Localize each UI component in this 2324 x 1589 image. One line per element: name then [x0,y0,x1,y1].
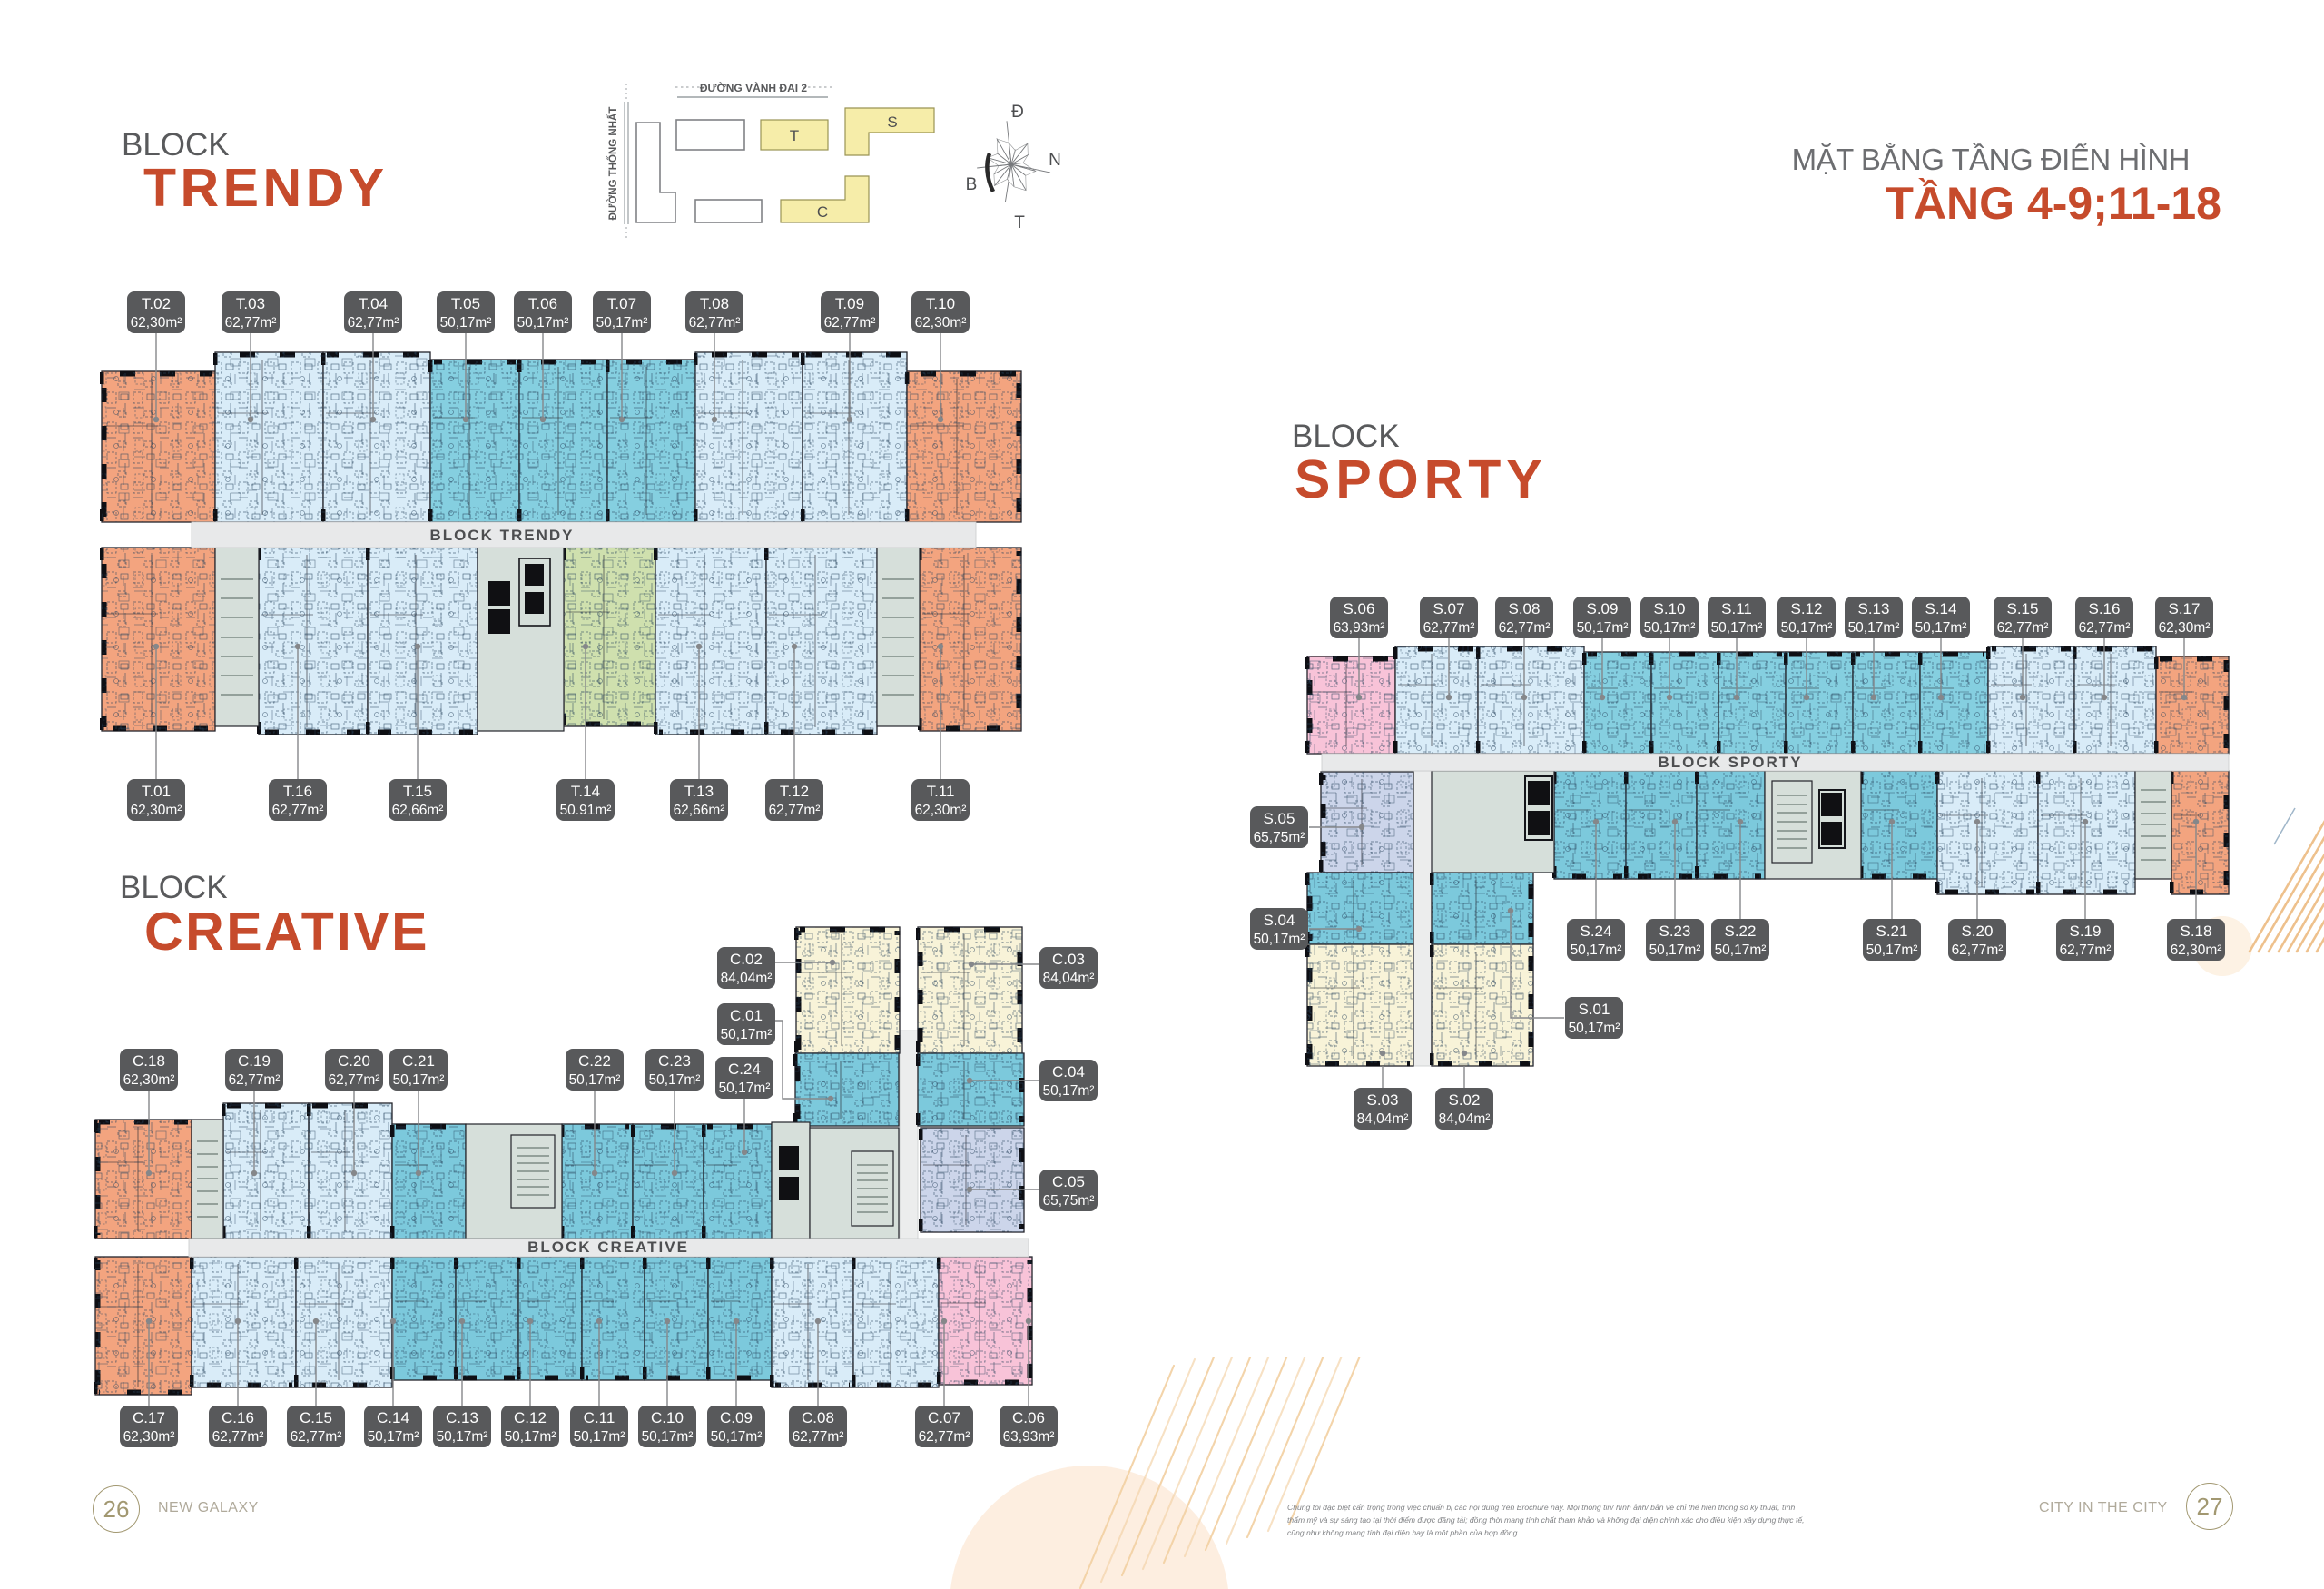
svg-text:T.07: T.07 [607,295,636,312]
svg-text:62,77m²: 62,77m² [1997,620,2049,636]
svg-text:C.14: C.14 [377,1409,409,1426]
svg-text:50,17m²: 50,17m² [1848,620,1900,636]
svg-text:T.05: T.05 [451,295,480,312]
svg-text:S.05: S.05 [1264,810,1295,827]
svg-text:50,17m²: 50,17m² [711,1429,763,1445]
svg-text:C.10: C.10 [651,1409,684,1426]
svg-text:50,17m²: 50,17m² [1577,620,1629,636]
svg-text:C.18: C.18 [133,1052,165,1070]
svg-text:C.16: C.16 [222,1409,254,1426]
svg-text:BLOCK SPORTY: BLOCK SPORTY [1658,754,1802,771]
svg-text:T.02: T.02 [142,295,171,312]
svg-text:C.05: C.05 [1052,1173,1085,1190]
svg-text:50,17m²: 50,17m² [1644,620,1696,636]
svg-text:C.03: C.03 [1052,951,1085,968]
svg-text:50,17m²: 50,17m² [505,1429,556,1445]
svg-text:62,77m²: 62,77m² [229,1072,281,1088]
svg-text:62,77m²: 62,77m² [272,803,324,818]
svg-text:C.17: C.17 [133,1409,165,1426]
svg-text:62,77m²: 62,77m² [793,1429,844,1445]
svg-text:T.13: T.13 [684,783,714,800]
svg-text:50,17m²: 50,17m² [517,315,569,331]
svg-text:C.20: C.20 [338,1052,370,1070]
svg-text:S.16: S.16 [2089,600,2121,617]
svg-text:62,77m²: 62,77m² [824,315,876,331]
svg-text:63,93m²: 63,93m² [1003,1429,1055,1445]
svg-text:62,30m²: 62,30m² [131,803,182,818]
svg-text:50,17m²: 50,17m² [642,1429,694,1445]
svg-text:C.07: C.07 [928,1409,960,1426]
svg-text:C.19: C.19 [238,1052,271,1070]
svg-text:T.01: T.01 [142,783,171,800]
svg-text:62,30m²: 62,30m² [915,803,967,818]
svg-text:C.01: C.01 [730,1007,763,1024]
svg-text:C.15: C.15 [300,1409,332,1426]
svg-text:50,17m²: 50,17m² [1711,620,1763,636]
svg-text:62,77m²: 62,77m² [225,315,277,331]
svg-text:50,17m²: 50,17m² [1649,943,1701,958]
svg-text:62,77m²: 62,77m² [2060,943,2112,958]
svg-text:S.11: S.11 [1721,600,1752,617]
svg-text:B: B [966,175,978,194]
svg-text:C.09: C.09 [720,1409,753,1426]
svg-text:50,17m²: 50,17m² [440,315,492,331]
svg-text:S.12: S.12 [1791,600,1823,617]
svg-text:T: T [1014,213,1025,232]
svg-text:50,17m²: 50,17m² [393,1072,445,1088]
svg-text:50.91m²: 50.91m² [560,803,612,818]
svg-text:ĐƯỜNG THỐNG NHẤT: ĐƯỜNG THỐNG NHẤT [606,107,619,221]
svg-text:S: S [887,113,897,131]
svg-text:T.16: T.16 [283,783,312,800]
svg-text:N: N [1049,151,1061,170]
svg-text:S.06: S.06 [1344,600,1375,617]
svg-text:C.23: C.23 [658,1052,691,1070]
svg-text:S.01: S.01 [1579,1001,1610,1018]
svg-text:65,75m²: 65,75m² [1254,830,1305,845]
svg-text:T.08: T.08 [700,295,729,312]
svg-text:50,17m²: 50,17m² [574,1429,625,1445]
svg-text:62,77m²: 62,77m² [212,1429,264,1445]
svg-text:S.17: S.17 [2169,600,2201,617]
svg-text:50,17m²: 50,17m² [649,1072,701,1088]
svg-text:62,77m²: 62,77m² [2079,620,2131,636]
svg-text:50,17m²: 50,17m² [569,1072,621,1088]
svg-text:T: T [790,127,799,144]
svg-text:50,17m²: 50,17m² [437,1429,488,1445]
svg-text:62,30m²: 62,30m² [2171,943,2222,958]
svg-text:62,30m²: 62,30m² [123,1072,175,1088]
svg-text:C.21: C.21 [402,1052,435,1070]
svg-text:84,04m²: 84,04m² [1439,1111,1491,1127]
svg-text:S.10: S.10 [1654,600,1686,617]
svg-text:C: C [817,203,828,221]
svg-text:50,17m²: 50,17m² [596,315,648,331]
svg-text:T.03: T.03 [236,295,265,312]
svg-text:C.24: C.24 [728,1061,761,1078]
svg-text:S.09: S.09 [1587,600,1619,617]
svg-text:C.13: C.13 [446,1409,478,1426]
svg-text:S.18: S.18 [2181,923,2212,940]
svg-text:S.24: S.24 [1581,923,1612,940]
svg-text:S.22: S.22 [1725,923,1757,940]
svg-text:T.06: T.06 [528,295,557,312]
svg-text:BLOCK TRENDY: BLOCK TRENDY [429,527,574,544]
svg-text:50,17m²: 50,17m² [721,1027,773,1042]
svg-text:62,77m²: 62,77m² [919,1429,970,1445]
svg-text:S.19: S.19 [2070,923,2102,940]
svg-text:62,77m²: 62,77m² [1952,943,2004,958]
svg-text:ĐƯỜNG VÀNH ĐAI 2: ĐƯỜNG VÀNH ĐAI 2 [700,81,808,94]
svg-text:50,17m²: 50,17m² [1571,943,1622,958]
svg-text:50,17m²: 50,17m² [1569,1021,1620,1036]
svg-text:T.04: T.04 [359,295,388,312]
svg-text:S.20: S.20 [1962,923,1994,940]
svg-text:65,75m²: 65,75m² [1043,1193,1095,1209]
svg-text:62,30m²: 62,30m² [2159,620,2211,636]
svg-text:S.15: S.15 [2007,600,2039,617]
svg-text:C.12: C.12 [514,1409,547,1426]
svg-text:50,17m²: 50,17m² [1781,620,1833,636]
svg-text:50,17m²: 50,17m² [1043,1083,1095,1099]
svg-text:T.15: T.15 [403,783,432,800]
svg-text:S.21: S.21 [1876,923,1908,940]
svg-text:50,17m²: 50,17m² [1915,620,1967,636]
svg-text:62,77m²: 62,77m² [329,1072,380,1088]
svg-text:T.11: T.11 [927,783,955,800]
svg-text:62,30m²: 62,30m² [915,315,967,331]
svg-text:50,17m²: 50,17m² [1254,932,1305,947]
svg-text:50,17m²: 50,17m² [368,1429,419,1445]
svg-text:62,77m²: 62,77m² [348,315,399,331]
svg-text:S.23: S.23 [1659,923,1691,940]
svg-text:S.13: S.13 [1858,600,1890,617]
svg-text:T.09: T.09 [835,295,864,312]
svg-text:62,77m²: 62,77m² [769,803,821,818]
svg-text:62,66m²: 62,66m² [392,803,444,818]
svg-text:BLOCK CREATIVE: BLOCK CREATIVE [527,1239,689,1256]
svg-text:62,66m²: 62,66m² [674,803,725,818]
svg-text:S.04: S.04 [1264,912,1295,929]
svg-text:84,04m²: 84,04m² [1043,971,1095,986]
svg-text:T.14: T.14 [571,783,600,800]
svg-text:62,30m²: 62,30m² [131,315,182,331]
svg-text:C.08: C.08 [802,1409,834,1426]
svg-text:62,77m²: 62,77m² [1499,620,1551,636]
svg-text:T.12: T.12 [780,783,809,800]
svg-text:50,17m²: 50,17m² [719,1081,771,1096]
svg-text:S.02: S.02 [1449,1091,1481,1109]
svg-text:84,04m²: 84,04m² [1357,1111,1409,1127]
svg-text:84,04m²: 84,04m² [721,971,773,986]
svg-text:S.07: S.07 [1433,600,1465,617]
svg-text:T.10: T.10 [926,295,955,312]
svg-text:S.08: S.08 [1509,600,1541,617]
svg-text:C.04: C.04 [1052,1063,1085,1081]
svg-text:C.02: C.02 [730,951,763,968]
svg-text:50,17m²: 50,17m² [1866,943,1918,958]
svg-text:62,30m²: 62,30m² [123,1429,175,1445]
svg-text:63,93m²: 63,93m² [1334,620,1385,636]
svg-text:Đ: Đ [1011,103,1024,122]
svg-text:S.03: S.03 [1367,1091,1399,1109]
svg-text:62,77m²: 62,77m² [1423,620,1475,636]
svg-text:S.14: S.14 [1925,600,1957,617]
svg-text:62,77m²: 62,77m² [290,1429,342,1445]
svg-text:62,77m²: 62,77m² [689,315,741,331]
svg-text:C.11: C.11 [584,1409,615,1426]
svg-text:C.22: C.22 [578,1052,611,1070]
svg-text:C.06: C.06 [1012,1409,1045,1426]
svg-text:50,17m²: 50,17m² [1715,943,1767,958]
